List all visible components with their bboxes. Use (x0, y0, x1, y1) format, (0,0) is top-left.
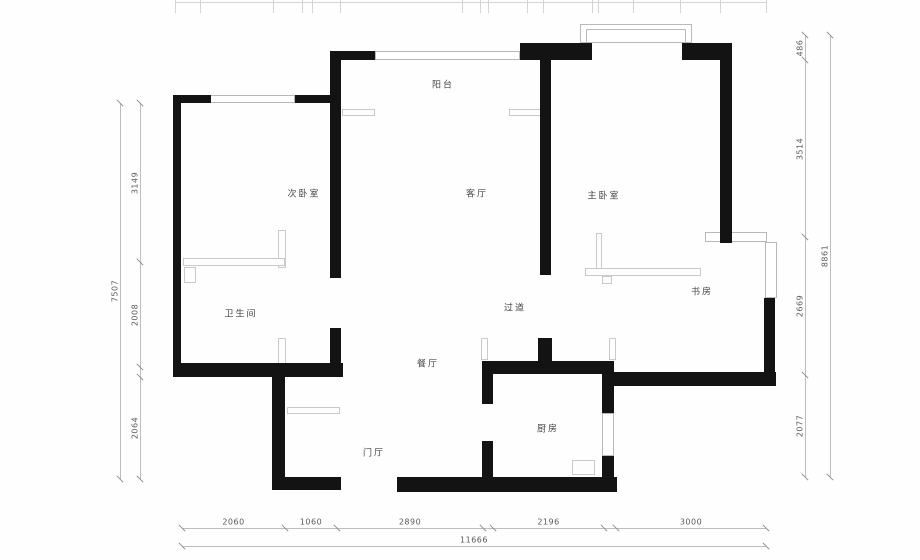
top-ruler-tick (302, 0, 303, 13)
dimension-label: 11666 (460, 536, 488, 545)
top-ruler-tick (680, 0, 681, 13)
top-ruler-tick (273, 0, 274, 13)
top-ruler-tick (633, 0, 634, 13)
dimension-label: 2669 (796, 295, 805, 317)
floor-plan: 阳台次卧室客厅主卧室书房卫生间过道餐厅厨房门厅 3149200820647507… (0, 0, 920, 560)
top-ruler-tick (462, 0, 463, 13)
dimension-label: 8861 (821, 245, 830, 267)
top-ruler-tick (480, 0, 481, 13)
dimension-label: 7507 (111, 280, 120, 302)
dimension-label: 486 (796, 39, 805, 56)
dimension-label: 2077 (796, 415, 805, 437)
dimension-label: 2196 (537, 518, 559, 527)
top-ruler-tick (766, 0, 767, 13)
top-ruler-tick (488, 0, 489, 13)
dimension-line (182, 546, 766, 547)
dimension-label: 3149 (131, 171, 140, 193)
top-ruler-tick (175, 0, 176, 13)
top-ruler-tick (527, 0, 528, 13)
dimensions-layer: 3149200820647507486351426692077886120601… (0, 0, 920, 560)
top-ruler-tick (200, 0, 201, 13)
dimension-label: 2060 (222, 518, 244, 527)
dimension-line (140, 103, 141, 479)
top-ruler-tick (340, 0, 341, 13)
dimension-line (182, 528, 766, 529)
dimension-line (805, 35, 806, 477)
dimension-label: 3514 (796, 137, 805, 159)
dimension-label: 2890 (399, 518, 421, 527)
dimension-label: 3000 (680, 518, 702, 527)
top-ruler-tick (312, 0, 313, 13)
top-ruler-tick (592, 0, 593, 13)
dimension-label: 2064 (131, 417, 140, 439)
dimension-label: 1060 (300, 518, 322, 527)
top-ruler-tick (720, 0, 721, 13)
dimension-label: 2008 (131, 303, 140, 325)
dimension-line (120, 103, 121, 479)
top-ruler-line (175, 2, 766, 3)
top-ruler-tick (598, 0, 599, 13)
top-ruler-tick (543, 0, 544, 13)
dimension-line (830, 35, 831, 477)
